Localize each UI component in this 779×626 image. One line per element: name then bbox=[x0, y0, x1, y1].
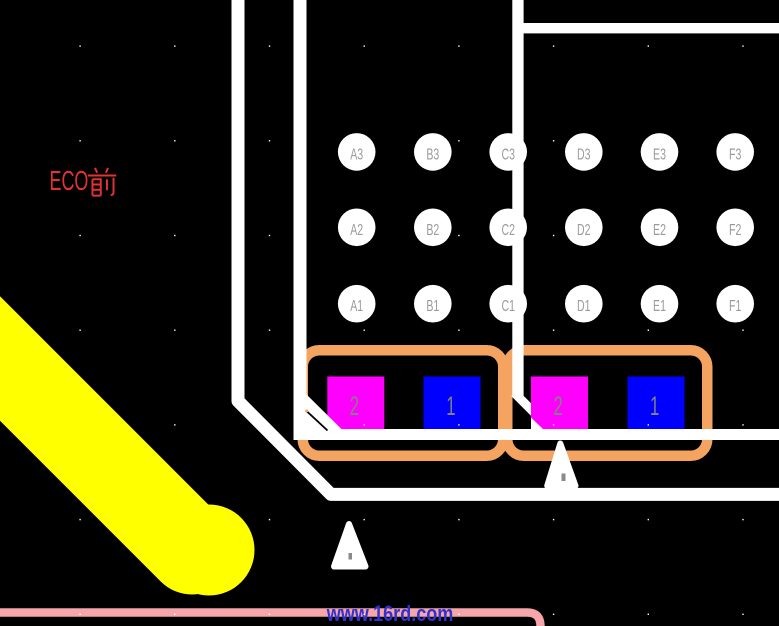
svg-text:E2: E2 bbox=[653, 221, 666, 239]
svg-text:E1: E1 bbox=[653, 297, 666, 315]
svg-text:A3: A3 bbox=[350, 145, 363, 163]
svg-text:1: 1 bbox=[446, 391, 455, 421]
svg-text:2: 2 bbox=[350, 391, 359, 421]
svg-text:F3: F3 bbox=[729, 145, 741, 163]
svg-text:C3: C3 bbox=[501, 145, 514, 163]
svg-text:F1: F1 bbox=[729, 297, 741, 315]
svg-text:1: 1 bbox=[650, 391, 659, 421]
svg-text:C2: C2 bbox=[501, 221, 514, 239]
svg-text:ECO: ECO bbox=[50, 165, 89, 196]
svg-text:D3: D3 bbox=[577, 145, 590, 163]
svg-text:www.16rd.com: www.16rd.com bbox=[326, 602, 454, 626]
svg-text:B2: B2 bbox=[426, 221, 439, 239]
svg-text:C1: C1 bbox=[501, 297, 514, 315]
svg-text:A1: A1 bbox=[350, 297, 363, 315]
svg-text:2: 2 bbox=[554, 391, 563, 421]
svg-text:D1: D1 bbox=[577, 297, 590, 315]
svg-text:F2: F2 bbox=[729, 221, 741, 239]
svg-text:D2: D2 bbox=[577, 221, 590, 239]
svg-text:E3: E3 bbox=[653, 145, 666, 163]
svg-text:B3: B3 bbox=[426, 145, 439, 163]
svg-text:B1: B1 bbox=[426, 297, 439, 315]
svg-text:A2: A2 bbox=[350, 221, 363, 239]
